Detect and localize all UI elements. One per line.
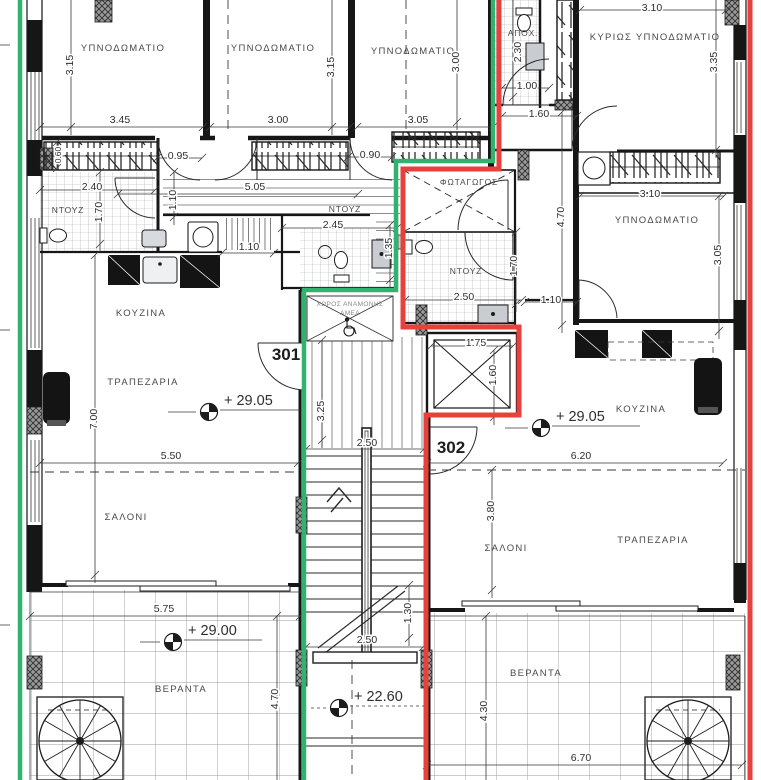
room-label-bed1: ΥΠΝΟΔΩΜΑΤΙΟ <box>81 43 165 54</box>
dim: 3.05 <box>712 245 724 266</box>
dim: 6.70 <box>571 752 592 764</box>
stair-bottom-rail <box>313 652 417 663</box>
dim: 3.15 <box>64 55 76 76</box>
room-label-bed4: ΥΠΝΟΔΩΜΑΤΙΟ <box>615 215 699 226</box>
room-label-kitchen2: ΚΟΥΖΙΝΑ <box>616 404 666 415</box>
dim: 2.30 <box>512 42 524 63</box>
dim: 3.15 <box>325 57 337 78</box>
dim: 1.60 <box>529 108 550 120</box>
room-label-bed2: ΥΠΝΟΔΩΜΑΤΙΟ <box>231 43 315 54</box>
hall-301-floor <box>163 172 400 215</box>
room-label-veranda1: ΒΕΡΑΝΤΑ <box>155 684 207 695</box>
sink <box>142 230 166 247</box>
dim: 5.50 <box>161 450 182 462</box>
level-value: + 22.60 <box>354 689 403 705</box>
dim: 1.75 <box>466 337 487 349</box>
cooktop <box>188 222 218 252</box>
toilet <box>405 240 433 254</box>
dim: 1.10 <box>167 190 179 211</box>
dim: 1.35 <box>383 238 395 259</box>
closet-bed4 <box>610 152 720 183</box>
room-label-living2: ΣΑΛΟΝΙ <box>484 543 527 554</box>
dim: 0.95 <box>168 150 189 162</box>
toilet <box>40 228 67 243</box>
dim: 0.90 <box>360 149 381 161</box>
kitchen-sink <box>143 257 177 283</box>
room-label-shower3: ΝΤΟΥΖ <box>450 266 482 276</box>
room-label-kitchen1: ΚΟΥΖΙΝΑ <box>116 308 166 319</box>
window <box>31 72 39 140</box>
room-label-sewage: ΑΠΟΧ. <box>508 28 538 38</box>
dim: 0.60 <box>53 146 63 163</box>
room-label-dining1: ΤΡΑΠΕΖΑΡΙΑ <box>107 377 178 388</box>
unit-number-301: 301 <box>272 345 300 364</box>
window <box>737 205 741 300</box>
room-label-master: ΚΥΡΙΩΣ ΥΠΝΟΔΩΜΑΤΙΟ <box>590 32 721 43</box>
fridge-302 <box>694 358 722 415</box>
room-label-bed3: ΥΠΝΟΔΩΜΑΤΙΟ <box>371 46 455 57</box>
level-value: + 29.00 <box>188 623 237 639</box>
room-label-veranda2: ΒΕΡΑΝΤΑ <box>510 668 562 679</box>
dim: 2.50 <box>357 634 378 646</box>
dim: 3.05 <box>408 114 429 126</box>
unit-number-302: 302 <box>437 438 465 457</box>
room-label-living1: ΣΑΛΟΝΙ <box>104 512 147 523</box>
dim: 4.70 <box>555 207 567 228</box>
level-value: + 29.05 <box>556 409 605 425</box>
dim: 5.75 <box>154 603 175 615</box>
dim: 7.00 <box>88 409 100 430</box>
dim: 4.30 <box>478 701 490 722</box>
sink <box>526 43 544 70</box>
window <box>737 62 741 133</box>
dim: 2.50 <box>357 437 378 449</box>
dim: 3.80 <box>485 501 497 522</box>
dim: 1.30 <box>402 603 414 624</box>
closet-hall-302 <box>557 0 574 100</box>
benchmark-22.60: + 22.60 <box>310 689 424 717</box>
dim: 3.00 <box>268 114 289 126</box>
room-label-wait1: ΧΩΡΟΣ ΑΝΑΜΟΝΗΣ <box>317 301 384 308</box>
dim: 3.10 <box>640 188 661 200</box>
dim: 2.40 <box>82 181 103 193</box>
floor-plan: + 29.05 + 29.05 + 29.00 + 22.60 ΥΠΝΟΔΩΜΑ… <box>0 0 761 780</box>
room-label-shower1: ΝΤΟΥΖ <box>52 205 84 215</box>
window <box>31 440 39 522</box>
dim: 3.10 <box>642 2 663 14</box>
washing-machine <box>578 152 610 185</box>
dim: 6.20 <box>571 450 592 462</box>
dim: 3.00 <box>450 52 462 73</box>
window <box>737 468 741 563</box>
room-label-lightwell: ΦΩΤΑΓΩΓΟΣ <box>440 177 498 187</box>
room-label-shower2: ΝΤΟΥΖ <box>329 204 361 214</box>
room-label-dining2: ΤΡΑΠΕΖΑΡΙΑ <box>617 535 688 546</box>
fridge-301 <box>43 372 70 424</box>
benchmark-29.05-301: + 29.05 <box>168 393 300 421</box>
room-label-wait2: ΑΜΕΑ <box>340 310 360 317</box>
level-value: + 29.05 <box>224 393 273 409</box>
dim: 1.10 <box>239 241 260 253</box>
dim: 3.35 <box>708 52 720 73</box>
floor-plan-svg: + 29.05 + 29.05 + 29.00 + 22.60 ΥΠΝΟΔΩΜΑ… <box>0 0 761 780</box>
closets <box>44 0 720 183</box>
door-bed4 <box>579 280 617 318</box>
window <box>31 218 39 348</box>
dim: 4.70 <box>269 689 281 710</box>
dim: 2.50 <box>454 291 475 303</box>
dim: 2.45 <box>323 219 344 231</box>
dim: 5.05 <box>245 181 266 193</box>
dim: 3.25 <box>315 401 327 422</box>
dim: 1.00 <box>517 80 538 92</box>
dim: 3.45 <box>110 114 131 126</box>
dim: 1.70 <box>93 202 105 223</box>
dim: 1.60 <box>487 365 499 386</box>
dim: 1.70 <box>508 256 520 277</box>
dim: 1.10 <box>541 294 562 306</box>
